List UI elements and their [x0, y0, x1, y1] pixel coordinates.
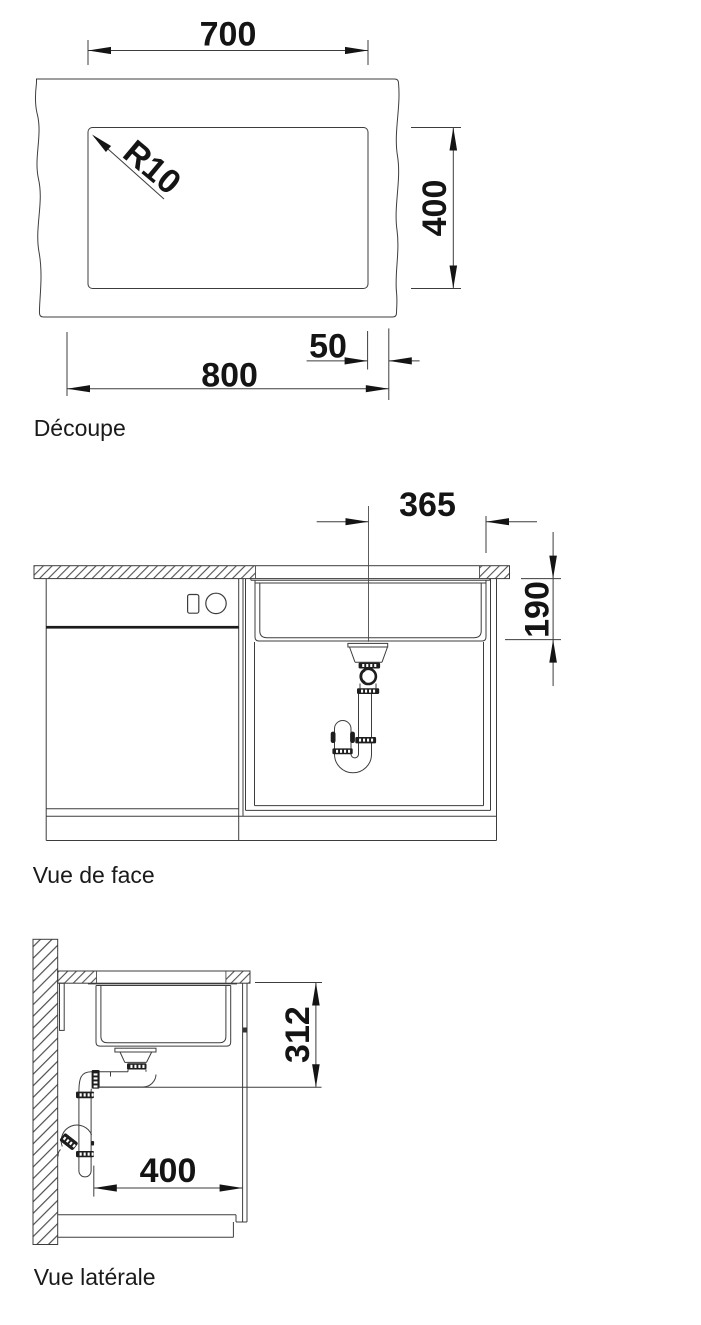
svg-text:Vue latérale: Vue latérale: [34, 1264, 156, 1290]
svg-text:Découpe: Découpe: [34, 415, 126, 441]
svg-text:Vue de face: Vue de face: [33, 862, 155, 888]
svg-text:365: 365: [399, 486, 456, 524]
svg-text:800: 800: [201, 356, 258, 394]
svg-text:50: 50: [309, 327, 347, 365]
svg-text:312: 312: [279, 1006, 317, 1063]
svg-text:190: 190: [519, 581, 557, 638]
svg-text:700: 700: [200, 15, 257, 53]
svg-text:400: 400: [140, 1152, 197, 1190]
svg-text:400: 400: [416, 180, 454, 237]
